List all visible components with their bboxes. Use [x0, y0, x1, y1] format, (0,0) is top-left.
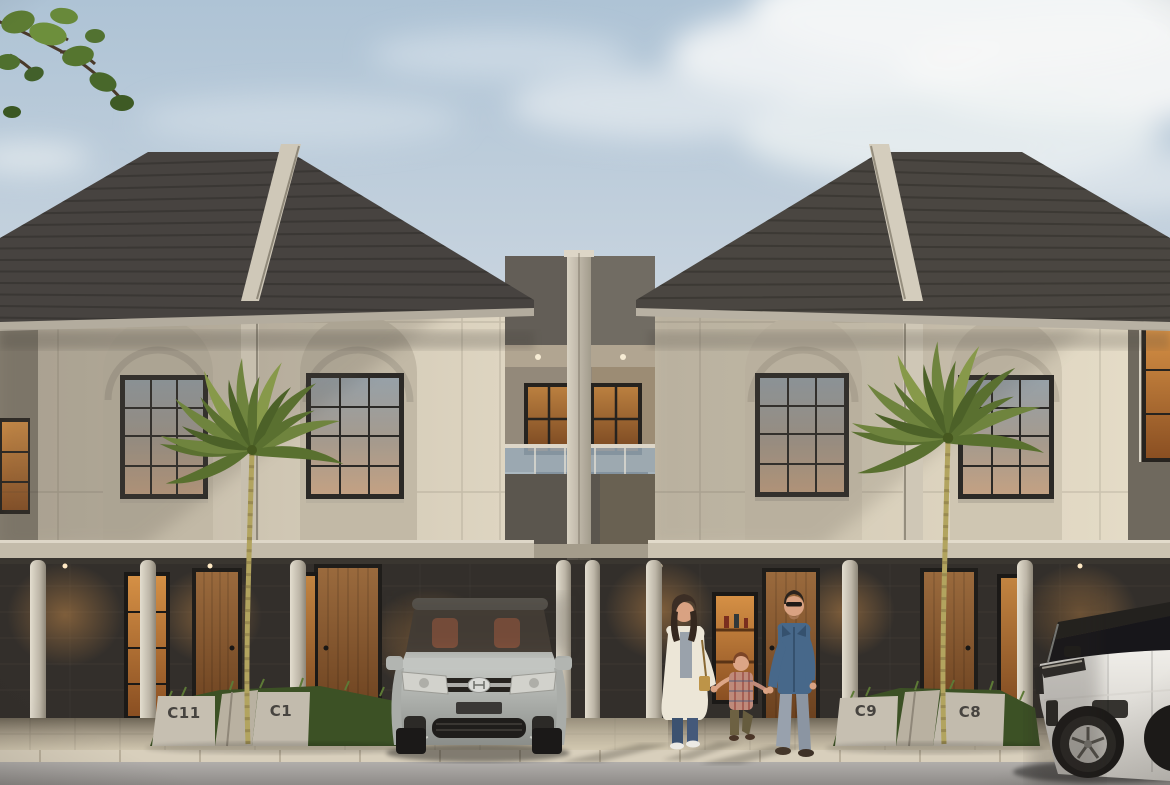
render-canvas: C11 C1 C9 C8: [0, 0, 1170, 785]
vignette: [0, 0, 1170, 785]
architectural-render: C11 C1 C9 C8: [0, 0, 1170, 785]
